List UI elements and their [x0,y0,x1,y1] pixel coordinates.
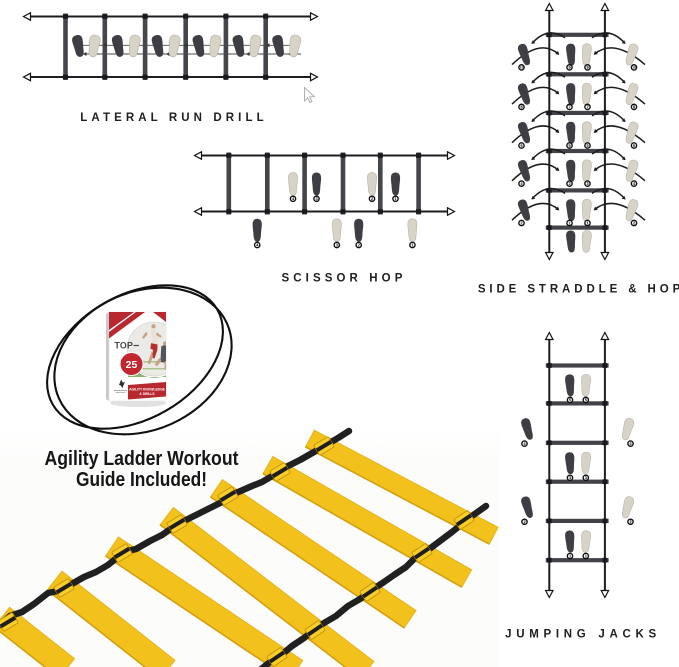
svg-text:& DRILLS: & DRILLS [139,392,155,396]
svg-text:SCISSOR HOP: SCISSOR HOP [282,273,407,285]
svg-text:SIDE STRADDLE & HOP: SIDE STRADDLE & HOP [478,284,679,296]
svg-text:LATERAL RUN DRILL: LATERAL RUN DRILL [80,112,267,124]
svg-text:JUMPING JACKS: JUMPING JACKS [505,629,661,641]
svg-text:TOP: TOP [115,341,134,351]
svg-text:25: 25 [126,359,138,371]
svg-text:AGILITY KNOWLEDGE: AGILITY KNOWLEDGE [129,388,165,392]
svg-text:Guide Included!: Guide Included! [76,468,207,491]
svg-text:Agility Ladder Workout: Agility Ladder Workout [45,447,239,470]
